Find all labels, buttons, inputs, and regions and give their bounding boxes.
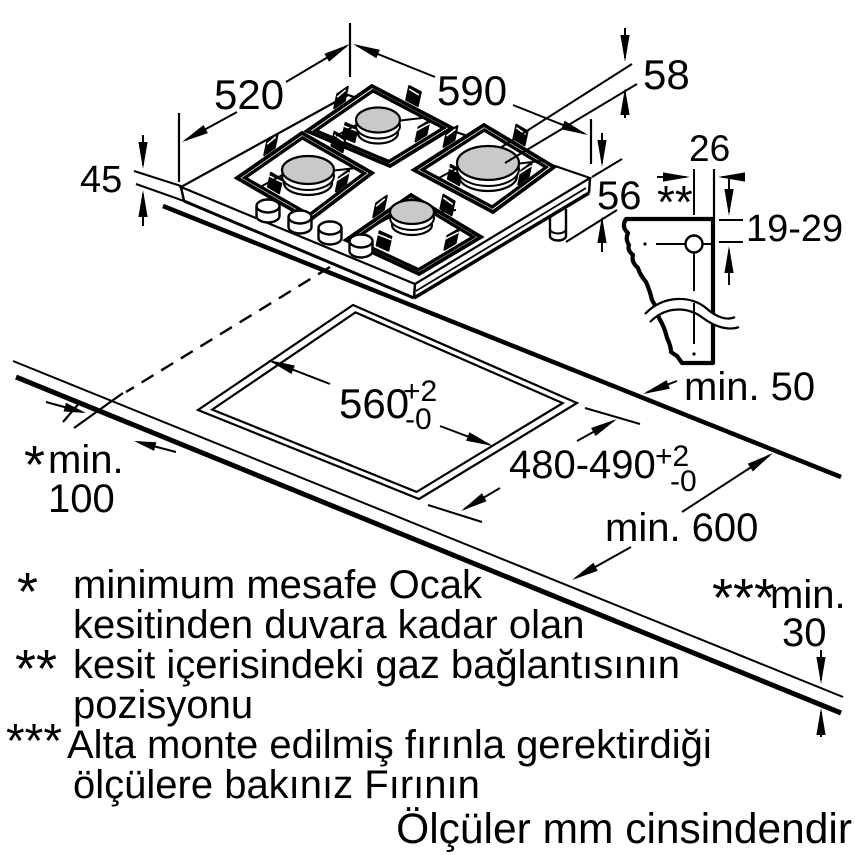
svg-text:**: ** (15, 639, 57, 699)
svg-text:*: * (24, 435, 45, 495)
svg-text:520: 520 (214, 71, 284, 118)
svg-text:***: *** (6, 715, 62, 768)
svg-text:-0: -0 (405, 403, 432, 436)
svg-text:19-29: 19-29 (746, 208, 843, 250)
svg-text:480-490: 480-490 (509, 443, 656, 487)
svg-text:Alta monte edilmiş fırınla ger: Alta monte edilmiş fırınla gerektirdiği (67, 723, 712, 767)
svg-text:kesitinden duvara kadar olan: kesitinden duvara kadar olan (73, 603, 584, 647)
svg-text:58: 58 (643, 51, 690, 98)
svg-text:kesit içerisindeki gaz bağlant: kesit içerisindeki gaz bağlantısının (73, 643, 680, 687)
svg-text:min. 600: min. 600 (605, 506, 758, 550)
svg-text:min.: min. (48, 438, 124, 482)
svg-text:26: 26 (689, 128, 730, 169)
svg-text:560: 560 (339, 380, 409, 427)
svg-text:100: 100 (48, 477, 115, 521)
svg-text:**: ** (657, 176, 693, 228)
svg-text:min. 50: min. 50 (684, 365, 815, 409)
svg-text:56: 56 (597, 174, 642, 218)
svg-text:minimum mesafe Ocak: minimum mesafe Ocak (73, 563, 483, 607)
svg-text:Ölçüler mm cinsindendir: Ölçüler mm cinsindendir (396, 806, 852, 853)
svg-text:45: 45 (80, 159, 122, 201)
svg-text:***: *** (712, 568, 775, 628)
svg-text:-0: -0 (670, 465, 697, 498)
svg-text:*: * (17, 562, 38, 622)
svg-text:30: 30 (782, 611, 827, 655)
svg-text:ölçülere bakınız Fırının: ölçülere bakınız Fırının (73, 763, 480, 807)
svg-text:pozisyonu: pozisyonu (73, 683, 253, 727)
svg-text:590: 590 (437, 67, 507, 114)
